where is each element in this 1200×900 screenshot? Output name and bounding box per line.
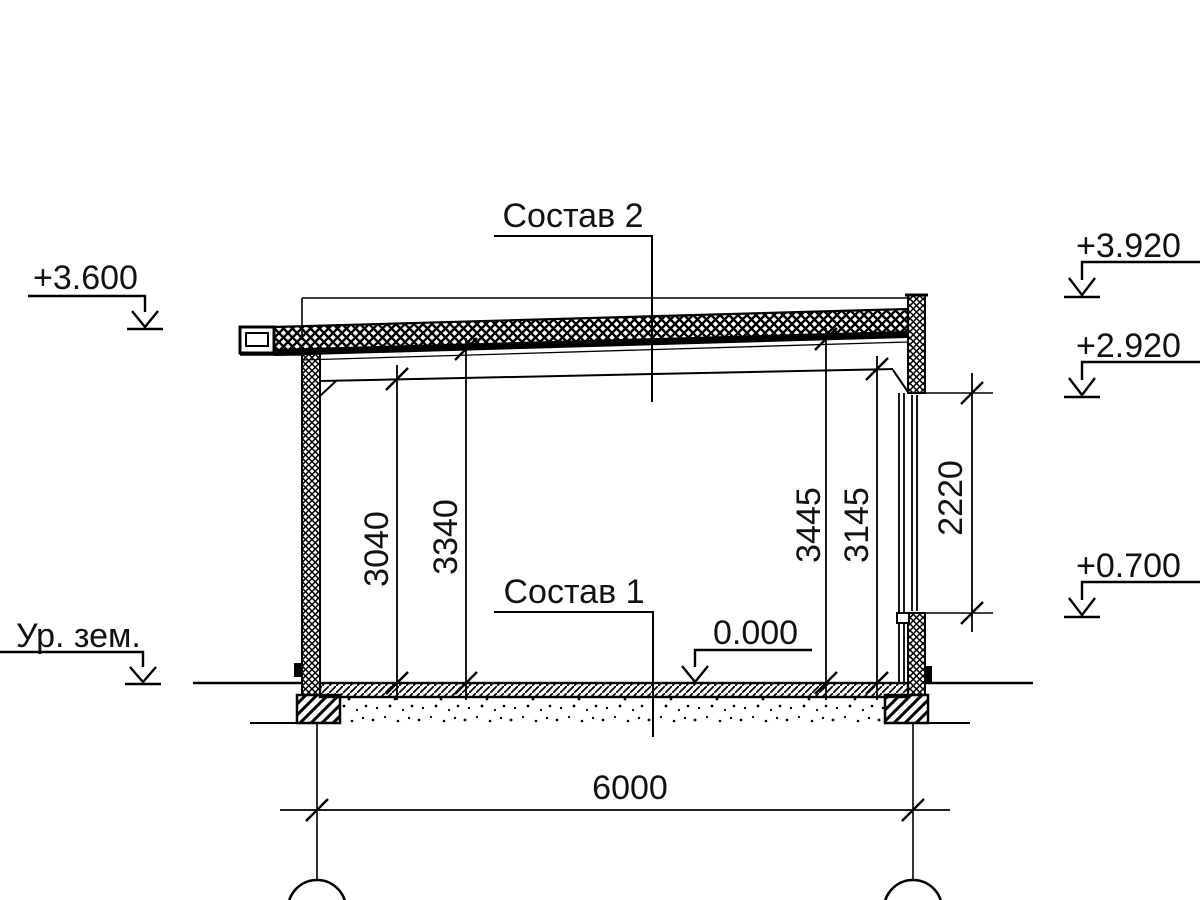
label-sostav-2-text: Состав 2 <box>503 197 644 235</box>
drawing-canvas: 6000 3040 3340 3445 3145 2220 <box>0 0 1200 900</box>
elevation-mark-floor: 0.000 <box>682 614 812 682</box>
right-wall-lintel <box>908 295 925 393</box>
right-wall-base-trim <box>925 666 932 683</box>
foundation-left <box>250 695 340 723</box>
dimension-ceiling-left-value: 3040 <box>358 511 396 587</box>
roof-slab <box>274 309 908 360</box>
base-course-layer <box>340 697 885 728</box>
label-sostav-2: Состав 2 <box>494 197 652 402</box>
level-arrow <box>130 667 156 682</box>
axis-bubble-right <box>884 880 942 900</box>
level-arrow <box>132 311 158 327</box>
dimension-opening-value: 2220 <box>932 460 970 536</box>
section-drawing: 6000 3040 3340 3445 3145 2220 <box>0 0 1200 900</box>
level-arrow <box>1069 378 1095 395</box>
dimension-ceiling-right: 3145 <box>838 356 888 700</box>
level-arrow <box>682 666 708 682</box>
dimension-ceiling-left: 3040 <box>358 365 408 700</box>
elevation-mark-opening-top: +2.920 <box>1064 327 1200 397</box>
dimension-ceiling-right-value: 3145 <box>838 487 876 563</box>
label-sostav-1-text: Состав 1 <box>504 573 645 611</box>
level-arrow <box>1069 598 1095 615</box>
elevation-mark-parapet: +3.920 <box>1064 227 1200 297</box>
right-wall-sill <box>908 613 925 695</box>
dimension-opening: 2220 <box>925 373 993 632</box>
dimension-span: 6000 <box>280 769 950 821</box>
ceiling-chamfer-right <box>893 370 908 392</box>
elevation-parapet-value: +3.920 <box>1076 227 1181 265</box>
foundation-right <box>885 695 970 723</box>
left-wall <box>294 351 320 695</box>
elevation-opening-top-value: +2.920 <box>1076 327 1181 365</box>
elevation-roof-left-value: +3.600 <box>33 259 138 297</box>
column-axes <box>288 723 942 900</box>
dimension-roof-left-value: 3340 <box>427 499 465 575</box>
elevation-floor-value: 0.000 <box>713 614 798 652</box>
dimension-roof-left: 3340 <box>427 338 477 700</box>
ground-level-mark: Ур. зем. <box>0 617 161 684</box>
axis-bubble-left <box>288 880 346 900</box>
ceiling-chamfer-left <box>320 381 336 396</box>
left-wall-base-trim <box>294 663 302 677</box>
elevation-sill-value: +0.700 <box>1076 547 1181 585</box>
dimension-roof-right-value: 3445 <box>790 487 828 563</box>
elevation-mark-sill: +0.700 <box>1064 547 1200 617</box>
ground-level-label: Ур. зем. <box>16 617 141 655</box>
level-arrow <box>1069 278 1095 295</box>
dimension-span-value: 6000 <box>592 769 668 807</box>
elevation-mark-roof-left: +3.600 <box>28 259 163 329</box>
gate-sill-block <box>897 613 909 623</box>
right-wall <box>905 295 932 695</box>
ceiling-line <box>320 369 908 396</box>
